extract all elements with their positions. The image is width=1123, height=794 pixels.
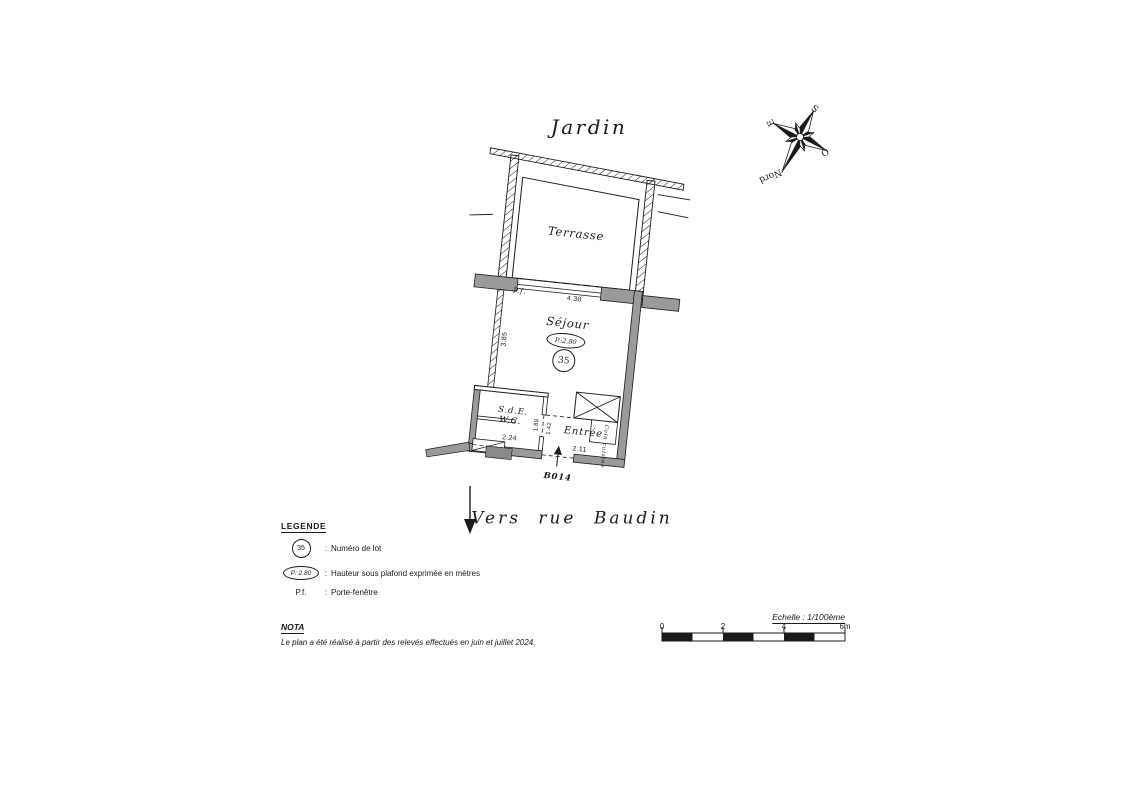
floor-plan-page: Jardin Vers rue Baudin S E O Nord Terras… xyxy=(0,0,1123,794)
legend-label: Numéro de lot xyxy=(331,544,381,553)
party-wall-angled xyxy=(425,438,471,461)
boundary-line-2 xyxy=(658,212,689,218)
kitchen-corner-box xyxy=(589,420,617,445)
sde-entree-partition-top xyxy=(542,397,548,415)
lot-number-symbol: 35 xyxy=(292,539,311,558)
sde-top-wall xyxy=(474,385,548,397)
porte-fenetre-symbol: P.f. xyxy=(296,588,307,597)
wall-terrace-bottom-left xyxy=(474,274,518,291)
nota-block: NOTA Le plan a été réalisé à partir des … xyxy=(281,622,535,647)
entrance-arrow-head xyxy=(554,445,563,455)
boundary-line-1 xyxy=(657,195,690,200)
scale-tick-4: 4 xyxy=(782,622,786,631)
entrance-arrow-stem xyxy=(557,453,558,467)
legend-label: Porte-fenêtre xyxy=(331,588,378,597)
legend: LEGENDE 35 : Numéro de lot P: 2.80 : Hau… xyxy=(281,521,480,605)
sejour-right-wall xyxy=(617,291,643,461)
legend-item-ceiling-height: P: 2.80 : Hauteur sous plafond exprimée … xyxy=(281,566,480,580)
legend-item-lot-number: 35 : Numéro de lot xyxy=(281,539,480,558)
legend-colon: : xyxy=(321,588,331,597)
building-outline xyxy=(425,144,694,481)
nota-body: Le plan a été réalisé à partir des relev… xyxy=(281,638,535,647)
sejour-left-wall xyxy=(488,289,504,387)
sde-partition-stub xyxy=(477,416,515,423)
legend-colon: : xyxy=(321,569,331,578)
fence-left-extension xyxy=(469,212,492,217)
terrace-left-wall xyxy=(497,155,519,286)
entree-top-dashed xyxy=(546,415,574,418)
legend-item-porte-fenetre: P.f. : Porte-fenêtre xyxy=(281,588,480,597)
scale-bar xyxy=(662,627,845,641)
legend-colon: : xyxy=(321,544,331,553)
scale-tick-6: 6m xyxy=(839,622,850,631)
wall-right-extension xyxy=(642,296,680,312)
legend-label: Hauteur sous plafond exprimée en mètres xyxy=(331,569,480,578)
scale-tick-2: 2 xyxy=(721,622,725,631)
sde-door-opening xyxy=(542,415,544,437)
nota-title: NOTA xyxy=(281,622,304,634)
terrace-deck xyxy=(512,177,640,290)
shower-tray xyxy=(485,446,512,460)
legend-title: LEGENDE xyxy=(281,521,326,533)
street-label: Vers rue Baudin xyxy=(471,511,672,528)
ceiling-height-symbol: P: 2.80 xyxy=(283,566,319,580)
page-title: Jardin xyxy=(551,117,628,137)
scale-tick-0: 0 xyxy=(660,622,664,631)
porte-fenetre-line2 xyxy=(517,288,601,297)
sde-entree-partition-bottom xyxy=(538,437,543,451)
terrace-right-wall xyxy=(635,180,655,292)
